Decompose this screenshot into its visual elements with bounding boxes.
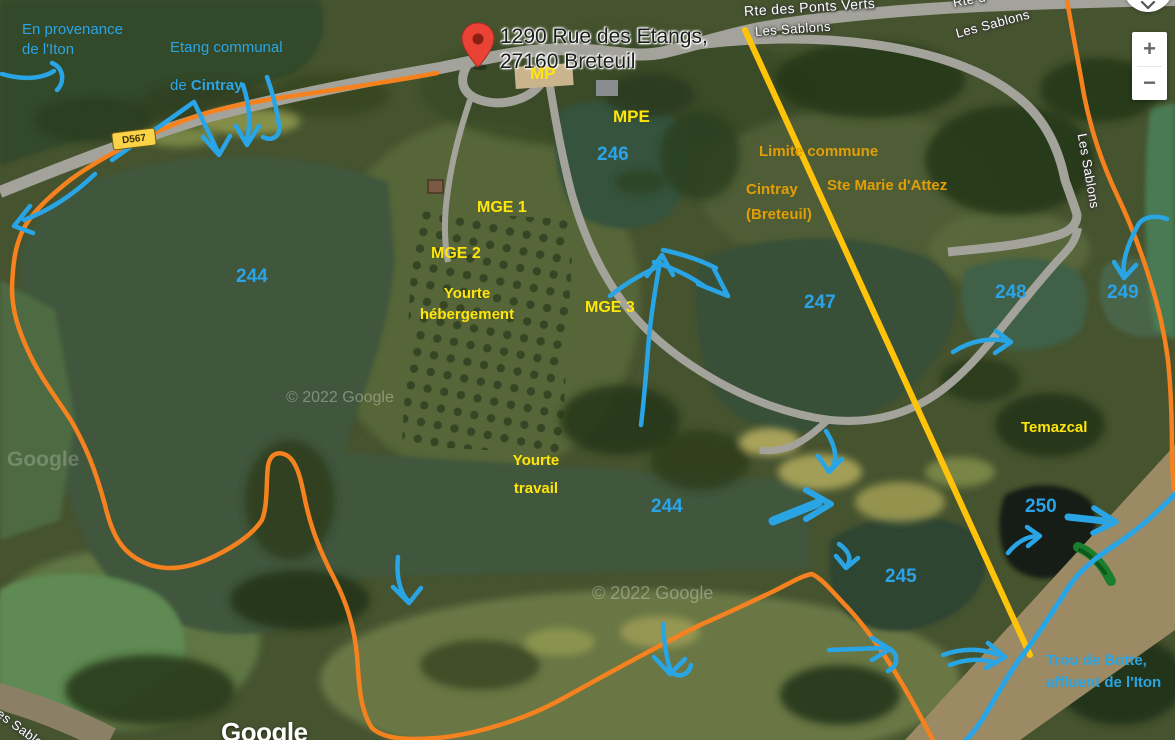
- pond-number-250: 250: [1025, 496, 1057, 518]
- note-mge1: MGE 1: [477, 199, 527, 217]
- note-etang-communal: Etang communal de Cintray: [170, 20, 283, 114]
- google-logo: Google: [221, 717, 308, 740]
- note-cintray-breteuil: Cintray (Breteuil): [746, 177, 812, 227]
- pond-number-246: 246: [597, 144, 629, 166]
- note-en-provenance-iton: En provenance de l'Iton: [22, 20, 123, 60]
- chevron-down-icon: [1140, 0, 1156, 10]
- map-canvas[interactable]: 1290 Rue des Etangs, 27160 Breteuil Rte …: [0, 0, 1175, 740]
- note-etang-line2: de Cintray: [170, 76, 283, 96]
- note-ste-marie-dattez: Ste Marie d'Attez: [827, 177, 947, 194]
- note-mge3: MGE 3: [585, 299, 635, 317]
- orchard-rows: [402, 211, 574, 454]
- pond-number-247: 247: [804, 292, 836, 314]
- pond-number-244-center: 244: [651, 496, 683, 518]
- pond-number-244-left: 244: [236, 266, 268, 288]
- note-temazcal: Temazcal: [1021, 419, 1087, 436]
- note-etang-line2-cintray: Cintray: [191, 77, 243, 94]
- note-yourte-travail: Yourte travail: [503, 447, 569, 503]
- copyright-watermark-2: © 2022 Google: [592, 583, 713, 604]
- zoom-control: + −: [1132, 32, 1167, 100]
- note-mge2: MGE 2: [431, 245, 481, 263]
- note-mpe: MPE: [613, 107, 650, 127]
- note-mp: MP: [530, 64, 556, 84]
- pond-number-245: 245: [885, 566, 917, 588]
- note-limite-commune: Limite commune: [759, 143, 878, 160]
- copyright-watermark-1: © 2022 Google: [286, 389, 394, 407]
- pond-number-248: 248: [995, 282, 1027, 304]
- note-etang-line2-prefix: de: [170, 77, 191, 94]
- pond-number-249: 249: [1107, 282, 1139, 304]
- note-yourte-hebergement: Yourte hébergement: [413, 283, 521, 325]
- google-watermark: Google: [7, 448, 79, 472]
- note-etang-line1: Etang communal: [170, 38, 283, 58]
- pin-address-line1: 1290 Rue des Etangs,: [500, 24, 708, 49]
- note-trou-de-botte: Trou de Botte, affluent de l'Iton: [1046, 650, 1161, 694]
- zoom-in-button[interactable]: +: [1132, 32, 1167, 66]
- zoom-out-button[interactable]: −: [1132, 67, 1167, 101]
